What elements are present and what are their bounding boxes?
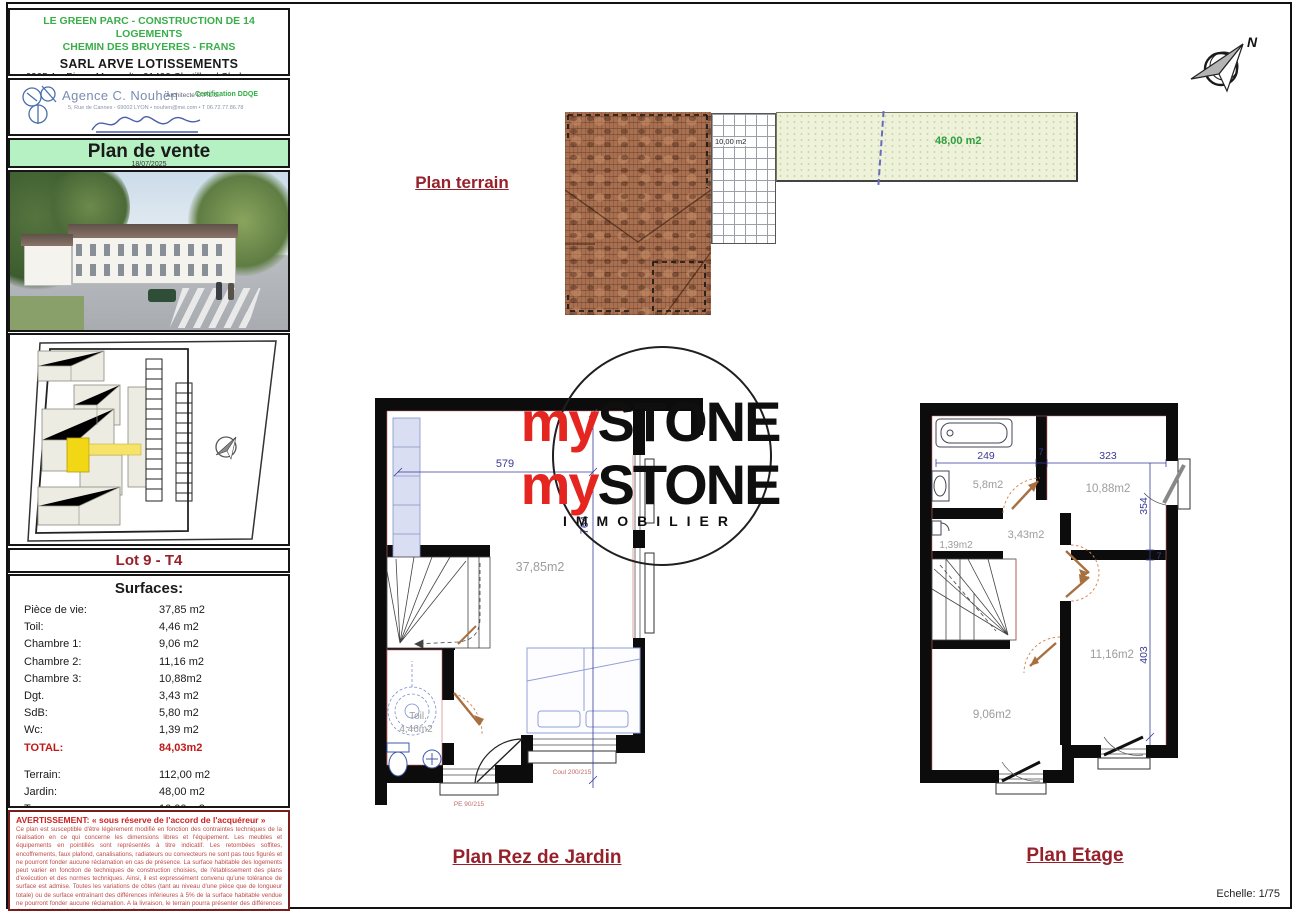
etage-dim-403: 403 (1138, 646, 1150, 664)
terrasse-area-label: 10,00 m2 (715, 137, 746, 146)
surfaces-title: Surfaces: (10, 580, 288, 597)
north-letter: N (1247, 34, 1258, 50)
etage-dim-249: 249 (977, 450, 995, 462)
signature-icon (88, 112, 208, 136)
jardin-area-label: 48,00 m2 (935, 135, 981, 147)
rdj-toilet-area: 4,46m2 (399, 724, 433, 735)
surface-row: Jardin:48,00 m2 (10, 784, 288, 801)
agency-logo-icon (18, 84, 66, 128)
etage-title: Plan Etage (965, 845, 1185, 867)
lot-label-box: Lot 9 - T4 (8, 548, 290, 573)
surface-row: Toil:4,46 m2 (10, 619, 288, 636)
rdj-dim-width: 579 (496, 458, 514, 470)
etage-room-dgt: 3,43m2 (1008, 529, 1045, 541)
etage-room-sdb: 5,8m2 (973, 479, 1004, 491)
agency-block: Agence C. Nouhën Architecte D.P.L.G. Cer… (8, 78, 290, 136)
rdj-dim-height: 764 (579, 516, 591, 534)
siteplan-drawing (10, 335, 288, 544)
surface-row: Wc:1,39 m2 (10, 722, 288, 739)
project-street: CHEMIN DES BRUYERES - FRANS (10, 41, 288, 54)
etage-dim-354: 354 (1138, 497, 1150, 515)
surface-total-row: TOTAL:84,03m2 (10, 740, 288, 757)
north-compass-icon: N (1185, 33, 1263, 97)
terrain-terrasse: 10,00 m2 (711, 113, 776, 244)
etage-room-ch3: 10,88m2 (1086, 483, 1131, 495)
company-address: 6205 Av. Pierre Marcault - 01400 Chatill… (10, 72, 288, 76)
surface-row: Pièce de vie:37,85 m2 (10, 602, 288, 619)
etage-room-ch1: 9,06m2 (973, 709, 1011, 721)
rdj-living-area: 37,85m2 (516, 560, 565, 574)
plan-de-vente-page: LE GREEN PARC - CONSTRUCTION DE 14 LOGEM… (0, 0, 1300, 919)
etage-floor-plan: 249 7 323 354 7 403 5,8m2 10,88m2 1,39m2… (916, 393, 1201, 808)
rdj-toilet-name: Toil. (409, 711, 427, 722)
plan-date: 18/07/2025 (10, 161, 288, 168)
surface-row: SdB:5,80 m2 (10, 705, 288, 722)
rdj-floor-plan: 579 764 37,85m2 Toil. 4,46m2 PE 90/215 C… (370, 393, 705, 813)
project-render-photo (8, 170, 290, 332)
rdj-bay-label: Coul 200/215 (553, 769, 592, 776)
etage-dim-7b: 7 (1156, 551, 1161, 561)
lot-label: Lot 9 - T4 (116, 552, 183, 569)
project-name: LE GREEN PARC - CONSTRUCTION DE 14 LOGEM… (10, 15, 288, 41)
surface-row: Chambre 2:11,16 m2 (10, 654, 288, 671)
agency-contact: 5, Rue de Cannes - 69002 LYON • nouhen@m… (68, 105, 243, 111)
agency-name: Agence C. Nouhën (62, 88, 178, 103)
warning-box: AVERTISSEMENT: « sous réserve de l'accor… (8, 810, 290, 911)
surface-row: Chambre 1:9,06 m2 (10, 636, 288, 653)
plan-title: Plan de vente (10, 141, 288, 163)
rdj-window-label: PE 90/215 (454, 801, 485, 808)
surface-row: Terrasse:10,00 m2 (10, 801, 288, 808)
etage-room-ch2: 11,16m2 (1090, 649, 1134, 661)
project-header: LE GREEN PARC - CONSTRUCTION DE 14 LOGEM… (8, 8, 290, 76)
surface-row: Dgt.3,43 m2 (10, 688, 288, 705)
surface-row: Terrain:112,00 m2 (10, 767, 288, 784)
etage-dim-323: 323 (1099, 450, 1117, 462)
etage-dim-7a: 7 (1038, 447, 1043, 457)
warning-title: AVERTISSEMENT: « sous réserve de l'accor… (16, 815, 282, 825)
terrain-roof-plan (565, 112, 711, 315)
etage-room-wc: 1,39m2 (939, 540, 973, 551)
terrain-title: Plan terrain (352, 173, 572, 193)
jardin-limit-line (877, 111, 884, 185)
rdj-title: Plan Rez de Jardin (427, 847, 647, 869)
agency-certification: Certification DDQE (195, 91, 258, 98)
surfaces-box: Surfaces: Pièce de vie:37,85 m2 Toil:4,4… (8, 574, 290, 808)
scale-label: Echelle: 1/75 (1130, 888, 1280, 900)
siteplan-box (8, 333, 290, 546)
terrain-jardin: 48,00 m2 (776, 112, 1078, 182)
surface-row: Chambre 3:10,88m2 (10, 671, 288, 688)
warning-body: Ce plan est susceptible d'être légèremen… (16, 826, 282, 911)
company-name: SARL ARVE LOTISSEMENTS (10, 57, 288, 71)
plan-title-box: Plan de vente 18/07/2025 (8, 138, 290, 168)
